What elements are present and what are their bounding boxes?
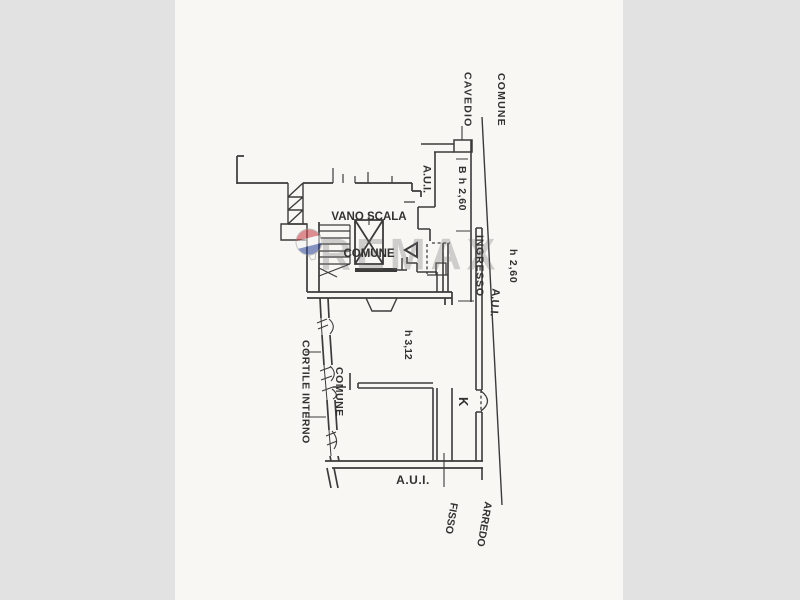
label-aui-upper: A.U.I. <box>420 159 432 199</box>
label-room-k: K <box>456 393 470 411</box>
label-dimension-b: B h 2,60 <box>456 160 467 218</box>
label-vano-scala-comune: VANO SCALA COMUNE <box>323 187 415 285</box>
label-room-height: h 3,12 <box>402 325 413 365</box>
label-cavedio-comune: CAVEDIO COMUNE <box>439 69 528 131</box>
floor-plan-drawing <box>175 0 623 600</box>
paper-sheet: REMAX CAVEDIO COMUNE A.U.I. B h 2,60 VAN… <box>175 0 623 600</box>
scanned-floorplan-page: REMAX CAVEDIO COMUNE A.U.I. B h 2,60 VAN… <box>0 0 800 600</box>
label-aui-lower: A.U.I. <box>395 474 431 487</box>
label-cortile-interno-comune: CORTILE INTERNO COMUNE <box>277 329 366 455</box>
label-aui-boundary: A.U.I. <box>487 285 501 320</box>
